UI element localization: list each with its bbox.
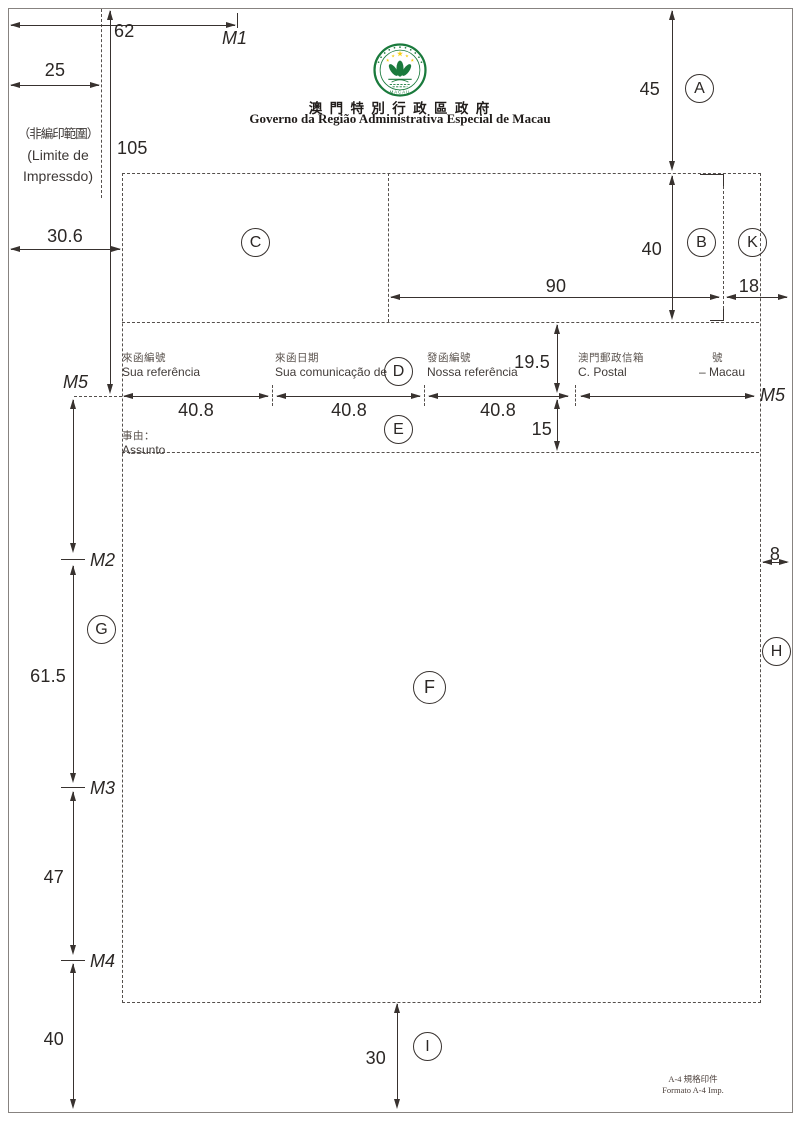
dim-line (11, 85, 99, 86)
field-label-pt: – Macau (699, 366, 745, 378)
arrowhead (90, 82, 100, 88)
dim-line (277, 396, 420, 397)
region-label-h: H (762, 637, 791, 666)
field-sua-referencia: 來函編號 Sua referência (122, 352, 200, 378)
dim-label: 40.8 (319, 401, 379, 419)
arrowhead (70, 773, 76, 783)
letterhead-spec-diagram: MACAU 澳 門 特 別 行 政 區 政 府 Governo da Regiã… (0, 0, 800, 1123)
field-c-postal: 澳門郵政信箱 C. Postal (578, 352, 644, 378)
dim-line (73, 964, 74, 1099)
gov-title-pt: Governo da Região Administrativa Especia… (200, 111, 600, 127)
dim-label: 15 (516, 420, 552, 438)
address-window-bottom-edge (710, 320, 723, 321)
field-label-zh: 號 (712, 352, 723, 364)
region-label-g: G (87, 615, 116, 644)
region-label-c: C (241, 228, 270, 257)
dim-label: 90 (543, 277, 569, 295)
dim-line (581, 396, 754, 397)
dim-line (11, 249, 120, 250)
address-window-top-edge (700, 174, 723, 175)
region-label-e: E (384, 415, 413, 444)
field-label-zh: 來函日期 (275, 352, 387, 364)
m4-tick (61, 960, 85, 961)
arrowhead (745, 393, 755, 399)
field-label-pt: Assunto (122, 444, 165, 456)
dim-line (110, 11, 111, 384)
address-window-right-edge (723, 186, 724, 309)
region-letter: A (694, 80, 705, 98)
dim-line (124, 396, 268, 397)
dim-label: 62 (114, 22, 134, 40)
marker-m4: M4 (90, 952, 115, 970)
field-assunto: 事由： Assunto (122, 430, 165, 456)
arrowhead (70, 543, 76, 553)
marker-m1: M1 (222, 29, 247, 47)
non-print-area-note: （非編印範圍） (Limite de Impressdo) (10, 124, 106, 187)
marker-m5-left: M5 (63, 373, 88, 391)
format-note-pt: Formato A-4 Imp. (628, 1085, 758, 1096)
dim-label: 61.5 (22, 667, 66, 685)
arrowhead (107, 384, 113, 394)
arrowhead (70, 945, 76, 955)
dim-line (391, 297, 719, 298)
dim-line (73, 792, 74, 945)
emblem-macau-label: MACAU (390, 90, 411, 95)
arrowhead (70, 1099, 76, 1109)
dim-label: 40.8 (468, 401, 528, 419)
chain-tick (424, 385, 425, 406)
dim-line (557, 325, 558, 383)
region-letter: F (424, 677, 435, 698)
region-label-d: D (384, 357, 413, 386)
dim-label: 105 (117, 139, 148, 157)
m2-tick (61, 559, 85, 560)
dim-label: 40.8 (166, 401, 226, 419)
region-letter: E (393, 421, 404, 439)
m1-tick (237, 13, 238, 28)
arrowhead (669, 161, 675, 171)
region-label-f: F (413, 671, 446, 704)
note-line-zh: （非編印範圍） (10, 124, 106, 145)
arrowhead (554, 441, 560, 451)
arrowhead (669, 310, 675, 320)
dim-label: 25 (30, 61, 80, 79)
dim-line (73, 400, 74, 543)
field-label-pt: Sua comunicação de (275, 366, 387, 378)
arrowhead (710, 294, 720, 300)
address-window-corner-bottom (723, 309, 724, 321)
field-label-zh: 來函編號 (122, 352, 200, 364)
arrowhead (259, 393, 269, 399)
region-letter: G (95, 621, 107, 639)
dim-label: 30 (352, 1049, 386, 1067)
dim-label: 30.6 (40, 227, 90, 245)
dim-line (397, 1004, 398, 1099)
region-letter: H (771, 643, 783, 661)
region-letter: C (250, 234, 262, 252)
chain-tick (272, 385, 273, 406)
arrowhead (554, 383, 560, 393)
arrowhead (111, 246, 121, 252)
field-label-pt: Sua referência (122, 366, 200, 378)
marker-m3: M3 (90, 779, 115, 797)
format-note-zh: A-4 規格印件 (628, 1074, 758, 1085)
dim-label: 40 (30, 1030, 64, 1048)
field-numero-macau-pt: – Macau (699, 364, 745, 378)
dim-label: 18 (736, 277, 762, 295)
dim-label: 47 (30, 868, 64, 886)
header-row-divider (122, 322, 759, 323)
ref-row-divider (122, 452, 759, 453)
field-numero-macau-zh: 號 (712, 352, 723, 364)
address-window-corner-top (723, 174, 724, 186)
m3-tick (61, 787, 85, 788)
dim-label: 40 (638, 240, 662, 258)
arrowhead (559, 393, 569, 399)
chain-tick (575, 385, 576, 406)
dim-line (672, 11, 673, 161)
m5-lead-dash (74, 396, 122, 397)
region-letter: I (425, 1038, 429, 1056)
format-note: A-4 規格印件 Formato A-4 Imp. (628, 1074, 758, 1096)
arrowhead (411, 393, 421, 399)
macau-emblem: MACAU (372, 42, 428, 98)
region-label-i: I (413, 1032, 442, 1061)
dim-line (429, 396, 568, 397)
dim-line (73, 566, 74, 773)
dim-label: 45 (636, 80, 660, 98)
dim-line (672, 176, 673, 310)
region-letter: K (747, 234, 758, 252)
arrowhead (778, 294, 788, 300)
region-letter: B (696, 234, 707, 252)
dim-label: 8 (766, 545, 784, 563)
arrowhead (394, 1099, 400, 1109)
region-label-b: B (687, 228, 716, 257)
field-label-pt: C. Postal (578, 366, 644, 378)
region-letter: D (393, 363, 405, 381)
header-col-divider (388, 173, 389, 322)
field-sua-comunicacao: 來函日期 Sua comunicação de (275, 352, 387, 378)
region-label-k: K (738, 228, 767, 257)
region-label-a: A (685, 74, 714, 103)
note-line-pt2: Impressdo) (10, 166, 106, 187)
marker-m5-right: M5 (760, 386, 785, 404)
marker-m2: M2 (90, 551, 115, 569)
note-line-pt1: (Limite de (10, 145, 106, 166)
field-label-zh: 澳門郵政信箱 (578, 352, 644, 364)
dim-label: 19.5 (505, 353, 550, 371)
field-label-zh: 事由： (122, 430, 165, 442)
dim-line (557, 400, 558, 441)
